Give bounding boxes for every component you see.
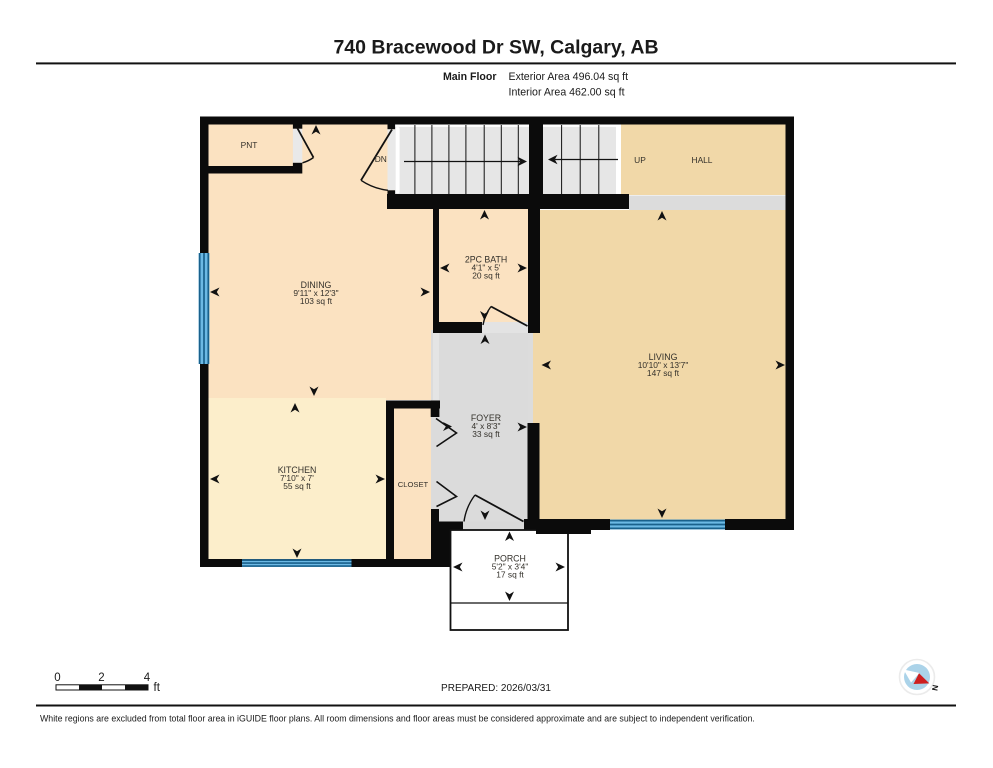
svg-text:20 sq ft: 20 sq ft xyxy=(472,270,500,280)
svg-text:ft: ft xyxy=(154,682,161,694)
svg-text:PREPARED: 2026/03/31: PREPARED: 2026/03/31 xyxy=(441,683,551,694)
svg-text:2: 2 xyxy=(98,672,104,684)
svg-text:147 sq ft: 147 sq ft xyxy=(647,368,680,378)
svg-text:17 sq ft: 17 sq ft xyxy=(496,569,524,579)
svg-text:55 sq ft: 55 sq ft xyxy=(283,481,311,491)
svg-text:UP: UP xyxy=(634,155,646,165)
svg-text:HALL: HALL xyxy=(692,155,713,165)
svg-text:33 sq ft: 33 sq ft xyxy=(472,429,500,439)
svg-text:740 Bracewood Dr SW, Calgary,: 740 Bracewood Dr SW, Calgary, AB xyxy=(333,37,658,59)
svg-text:PNT: PNT xyxy=(241,140,258,150)
svg-text:DN: DN xyxy=(375,154,387,164)
svg-text:0: 0 xyxy=(54,672,60,684)
svg-text:White regions are excluded fro: White regions are excluded from total fl… xyxy=(40,714,755,724)
svg-text:Exterior Area 496.04 sq ft: Exterior Area 496.04 sq ft xyxy=(509,71,629,83)
svg-text:103 sq ft: 103 sq ft xyxy=(300,296,333,306)
svg-text:CLOSET: CLOSET xyxy=(398,480,429,489)
svg-text:4: 4 xyxy=(144,672,151,684)
svg-text:Interior Area 462.00 sq ft: Interior Area 462.00 sq ft xyxy=(509,87,625,99)
svg-text:Main Floor: Main Floor xyxy=(443,71,497,83)
